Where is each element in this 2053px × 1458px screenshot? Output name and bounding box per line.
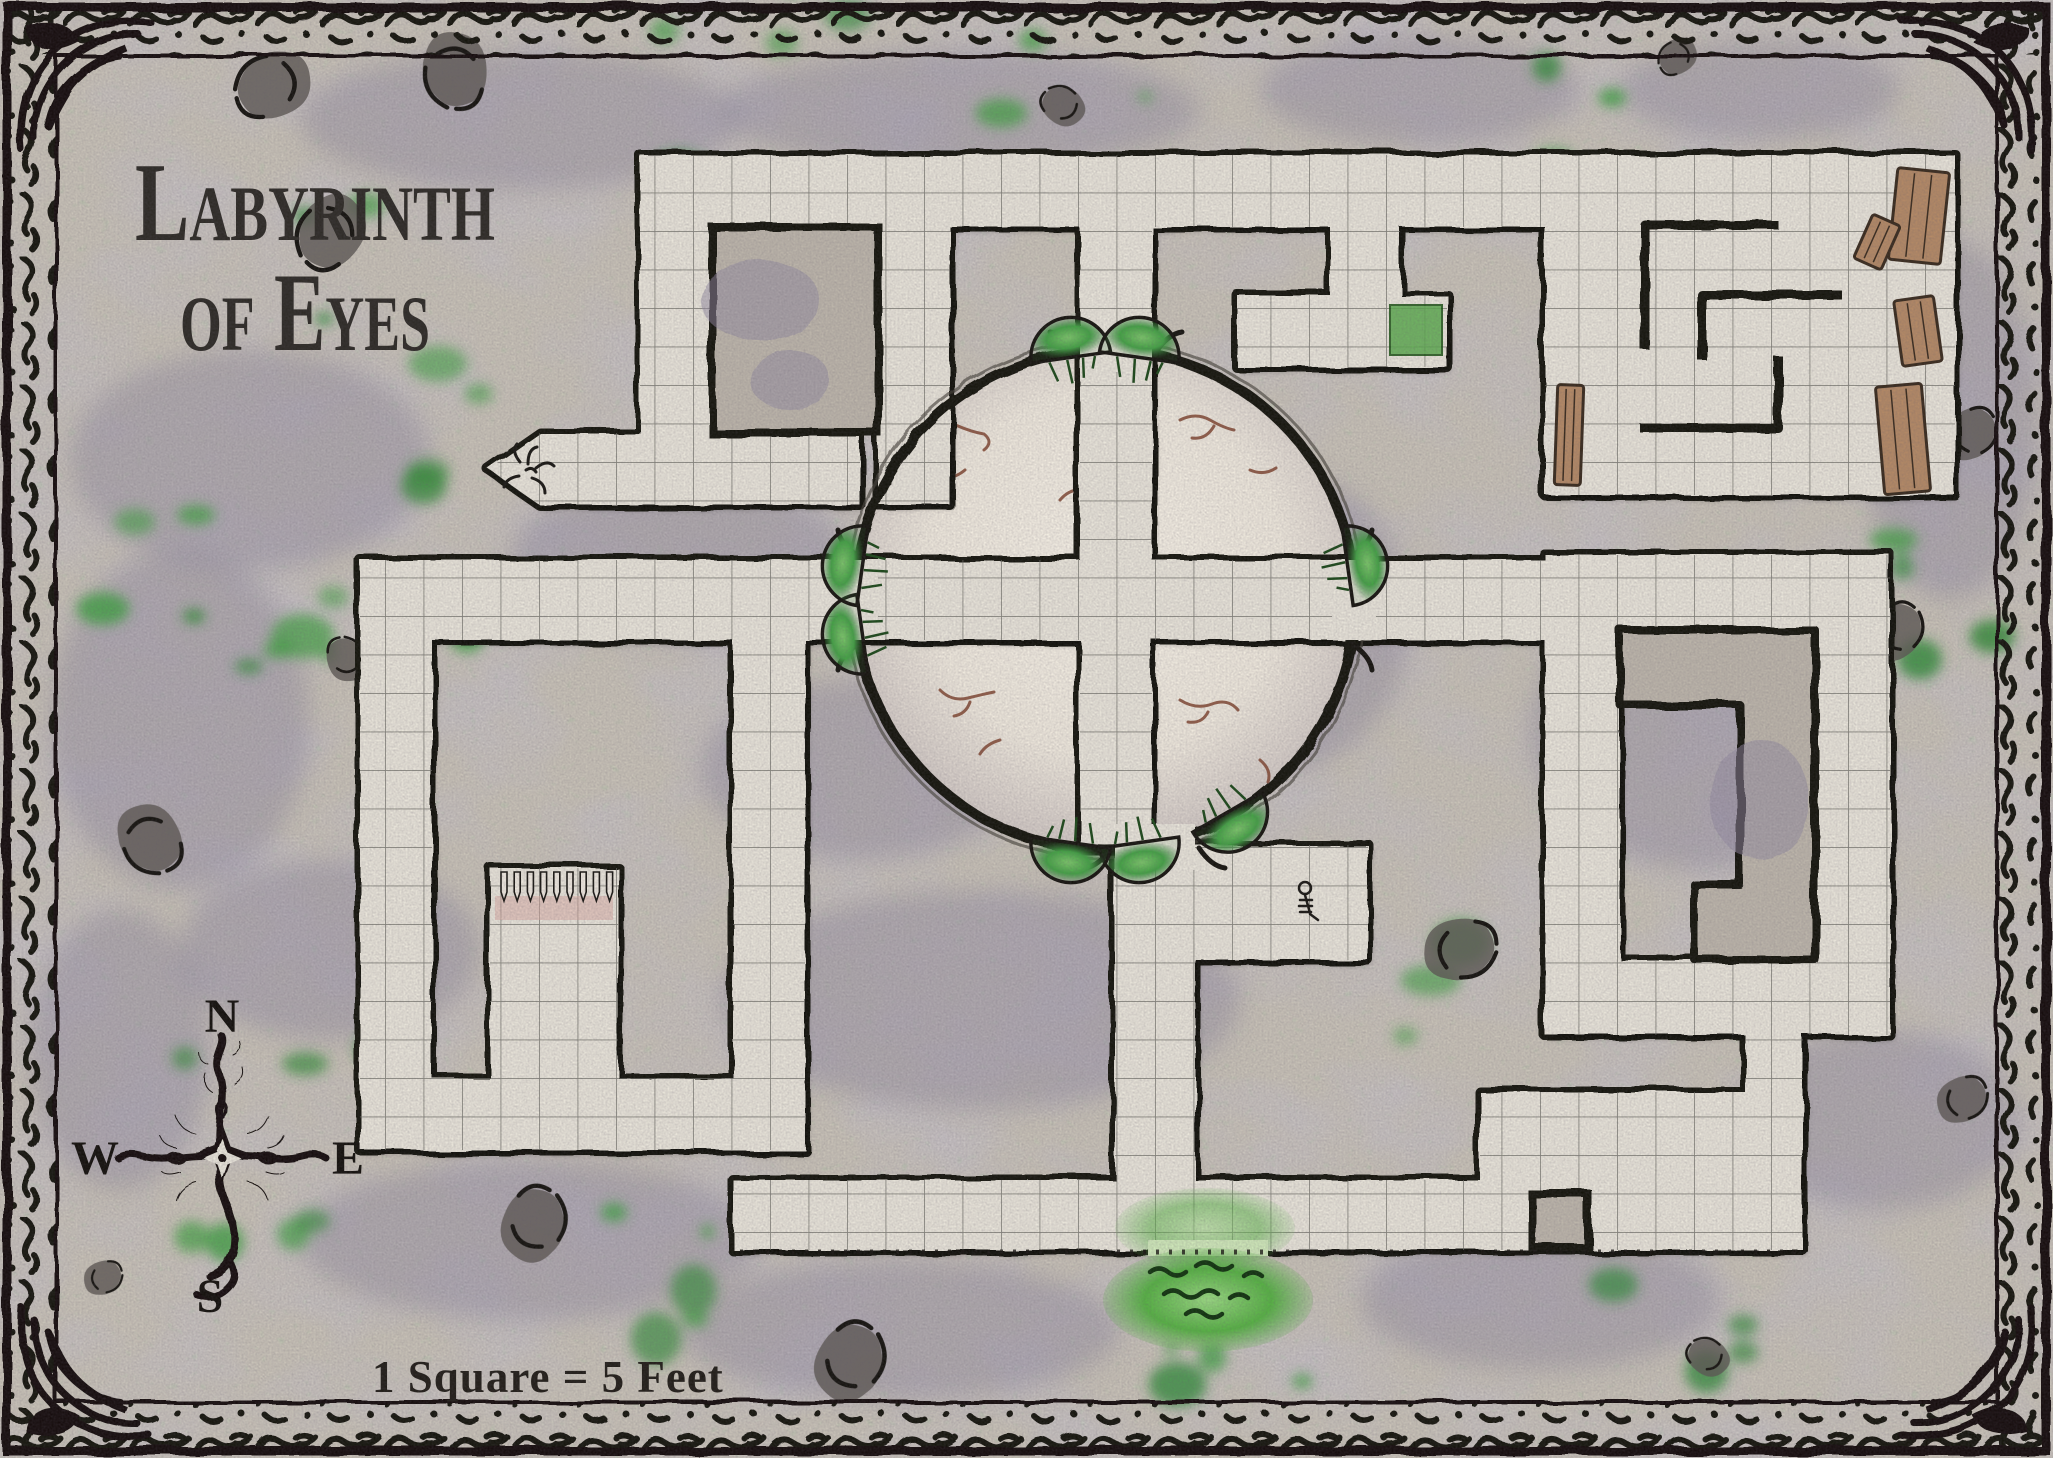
moss-blob bbox=[682, 1312, 709, 1328]
spike bbox=[567, 872, 573, 901]
map-art bbox=[1554, 385, 1583, 486]
moss-square bbox=[1390, 305, 1442, 355]
moss-blob bbox=[601, 1203, 628, 1222]
map-title-line2: of Eyes bbox=[180, 251, 430, 375]
pillar-mottle bbox=[1710, 740, 1810, 860]
moss-blob bbox=[172, 1047, 198, 1070]
moss-blob bbox=[671, 1264, 717, 1316]
compass-west-label: W bbox=[71, 1132, 119, 1185]
dungeon-map-page: Labyrinth of Eyes N W E S 1 Square = 5 F… bbox=[0, 0, 2053, 1458]
moss-blob bbox=[1728, 1341, 1758, 1364]
moss-blob bbox=[406, 458, 450, 485]
spike bbox=[527, 872, 533, 901]
moss-blob bbox=[1589, 1268, 1638, 1302]
moss-blob bbox=[1895, 551, 1908, 563]
moss-blob bbox=[174, 1221, 210, 1253]
pillar-mottle bbox=[750, 350, 830, 410]
moss-blob bbox=[318, 586, 349, 608]
map-title-line1: Labyrinth bbox=[135, 141, 495, 265]
compass-north-label: N bbox=[205, 990, 240, 1043]
moss-blob bbox=[701, 1225, 714, 1238]
moss-blob bbox=[1138, 91, 1153, 101]
compass-south-label: S bbox=[197, 1270, 224, 1323]
moss-blob bbox=[464, 384, 492, 404]
map-art bbox=[1894, 296, 1943, 367]
moss-blob bbox=[1869, 528, 1917, 551]
map-art bbox=[1875, 383, 1930, 495]
moss-blob bbox=[1393, 1027, 1418, 1045]
moss-blob bbox=[263, 641, 293, 659]
moss-blob bbox=[183, 609, 206, 623]
debris-plank bbox=[1894, 296, 1943, 367]
compass-east-label: E bbox=[332, 1132, 364, 1185]
moss-blob bbox=[234, 659, 263, 674]
map-canvas: Labyrinth of Eyes N W E S 1 Square = 5 F… bbox=[0, 0, 2053, 1458]
moss-blob bbox=[1292, 1374, 1313, 1389]
moss-blob bbox=[1598, 88, 1626, 107]
moss-blob bbox=[975, 99, 1027, 128]
spike bbox=[541, 872, 547, 901]
moss-blob bbox=[294, 1209, 329, 1232]
spike bbox=[554, 872, 560, 901]
rock-pillar bbox=[1532, 1194, 1588, 1248]
map-art bbox=[1888, 168, 1949, 265]
scale-label: 1 Square = 5 Feet bbox=[372, 1352, 724, 1402]
moss-blob bbox=[76, 592, 129, 625]
spike bbox=[593, 872, 599, 901]
debris-plank bbox=[1554, 385, 1583, 486]
debris-plank bbox=[1875, 383, 1930, 495]
spike bbox=[607, 872, 613, 901]
spike bbox=[501, 872, 507, 901]
rock-mottle-patch bbox=[70, 350, 430, 570]
moss-blob bbox=[114, 509, 155, 535]
spike bbox=[580, 872, 586, 901]
pillar-mottle bbox=[700, 260, 820, 340]
debris-plank bbox=[1888, 168, 1949, 265]
moss-blob bbox=[1728, 1314, 1758, 1335]
moss-blob bbox=[177, 505, 215, 525]
rock-mottle-patch bbox=[680, 1260, 1120, 1400]
moss-blob bbox=[282, 1052, 328, 1076]
moss-blob bbox=[1149, 1362, 1207, 1407]
spike bbox=[514, 872, 520, 901]
